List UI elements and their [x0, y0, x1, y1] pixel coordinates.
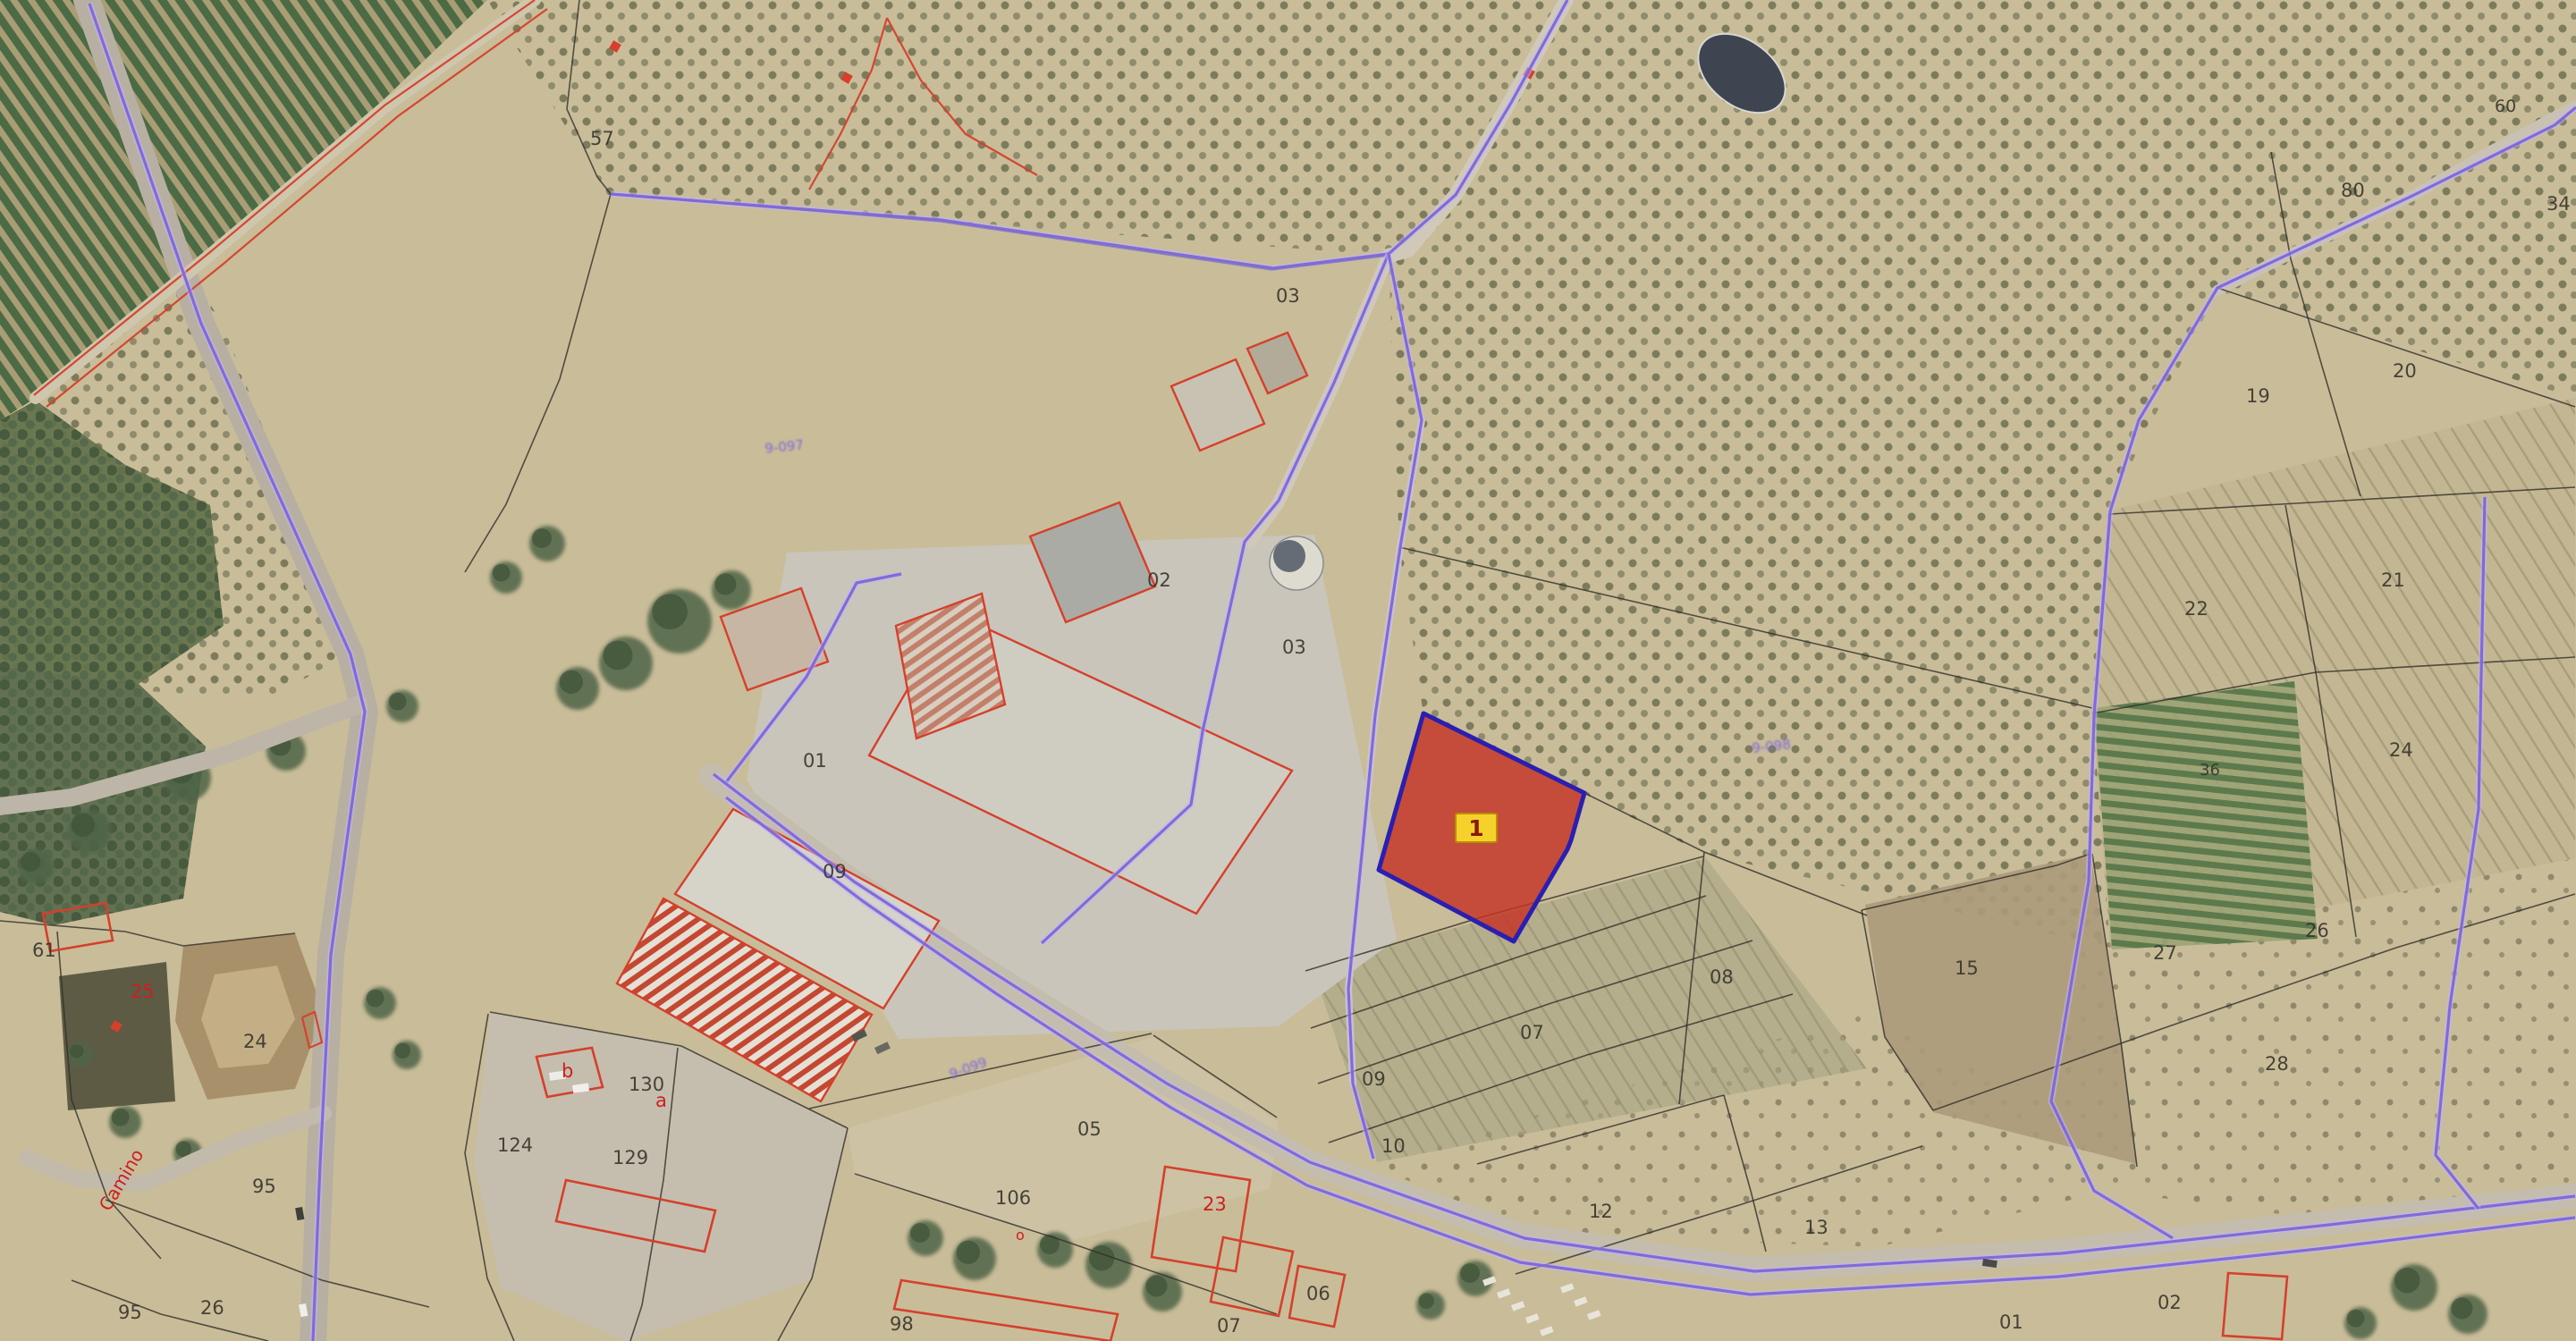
parcel-number-label: 10	[1381, 1135, 1406, 1157]
parcel-number-label: 26	[200, 1297, 224, 1319]
parcel-number-label: 03	[1282, 637, 1306, 658]
tree-cluster-shade	[910, 1223, 930, 1243]
parcel-number-label: 95	[118, 1302, 142, 1323]
tree-cluster-shade	[2347, 1310, 2365, 1328]
parcel-number-label: 27	[2153, 942, 2177, 964]
tree-cluster-shade	[532, 528, 552, 548]
parcel-number-label: 28	[2265, 1053, 2289, 1075]
tree-cluster-shade	[1460, 1263, 1480, 1283]
tree-cluster-shade	[70, 1044, 83, 1058]
parcel-number-label: 09	[823, 861, 847, 882]
aerial-cadastral-map[interactable]: 1570302030109608034201922212436261527280…	[0, 0, 2576, 1341]
red-annotation-label: 23	[1203, 1193, 1227, 1215]
parcel-number-label: 08	[1710, 966, 1734, 988]
parcel-marker-label: 1	[1468, 815, 1483, 841]
parcel-number-label: 07	[1520, 1022, 1544, 1043]
red-annotation-label: b	[562, 1060, 573, 1082]
tree-cluster-shade	[560, 670, 583, 694]
parcel-number-label: 13	[1804, 1217, 1829, 1238]
parcel-number-label: 12	[1589, 1201, 1613, 1222]
parcel-number-label: 57	[590, 128, 614, 149]
parcel-number-label: 01	[1999, 1311, 2023, 1333]
red-annotation-label: 25	[131, 981, 155, 1002]
parcel-number-label: 80	[2341, 180, 2365, 201]
parcel-number-label: 95	[252, 1176, 276, 1197]
dark-plowed-field	[59, 962, 175, 1110]
tree-cluster-shade	[389, 693, 407, 711]
tree-cluster-shade	[1418, 1293, 1434, 1309]
parcel-number-label: 24	[2389, 739, 2413, 761]
tree-cluster-shade	[1145, 1275, 1167, 1296]
parcel-number-label: 03	[1276, 285, 1300, 307]
tree-cluster-shade	[367, 990, 384, 1008]
parcel-number-label: 106	[995, 1187, 1031, 1209]
parcel-number-label: 36	[2200, 761, 2220, 780]
parcel-number-label: 22	[2184, 598, 2209, 620]
tree-cluster-shade	[21, 852, 40, 872]
parcel-number-label: 124	[497, 1134, 533, 1156]
parcel-number-label: 06	[1306, 1283, 1330, 1304]
parcel-number-label: 34	[2546, 193, 2571, 215]
red-annotation-label: o	[1016, 1227, 1025, 1244]
parcel-number-label: 26	[2305, 920, 2329, 941]
tree-cluster-shade	[72, 814, 95, 837]
parcel-number-label: 05	[1077, 1118, 1102, 1140]
parcel-number-label: 98	[890, 1313, 914, 1335]
parcel-number-label: 21	[2381, 569, 2405, 591]
parcel-number-label: 09	[1362, 1068, 1386, 1090]
silo-dome-cap	[1273, 540, 1305, 572]
vineyard-right-rows	[2094, 681, 2318, 949]
red-annotation-label: a	[655, 1090, 667, 1111]
parcel-number-label: 01	[803, 750, 827, 772]
tree-cluster-shade	[2394, 1268, 2420, 1294]
tree-cluster-shade	[957, 1241, 980, 1264]
tree-cluster-shade	[604, 641, 633, 670]
tree-cluster-shade	[2451, 1297, 2472, 1319]
parcel-number-label: 15	[1955, 957, 1979, 979]
parcel-number-label: 61	[32, 940, 56, 961]
tree-cluster-shade	[714, 573, 736, 595]
map-viewport[interactable]: 1570302030109608034201922212436261527280…	[0, 0, 2576, 1341]
parcel-number-label: 60	[2495, 97, 2516, 116]
tree-cluster-shade	[112, 1109, 130, 1126]
parcel-number-label: 02	[2158, 1292, 2182, 1313]
tree-cluster-shade	[1089, 1245, 1115, 1271]
parcel-number-label: 24	[243, 1031, 267, 1052]
tree-cluster-shade	[1040, 1235, 1060, 1254]
parcel-number-label: 19	[2246, 385, 2270, 407]
parcel-number-label: 02	[1147, 569, 1171, 591]
tree-cluster-shade	[652, 594, 688, 629]
tree-cluster-shade	[493, 564, 511, 582]
tree-cluster-shade	[394, 1042, 410, 1058]
parcel-number-label: 07	[1217, 1315, 1241, 1337]
tree-cluster-shade	[175, 1141, 191, 1157]
parcel-number-label: 129	[612, 1147, 648, 1168]
parcel-number-label: 20	[2393, 360, 2417, 382]
